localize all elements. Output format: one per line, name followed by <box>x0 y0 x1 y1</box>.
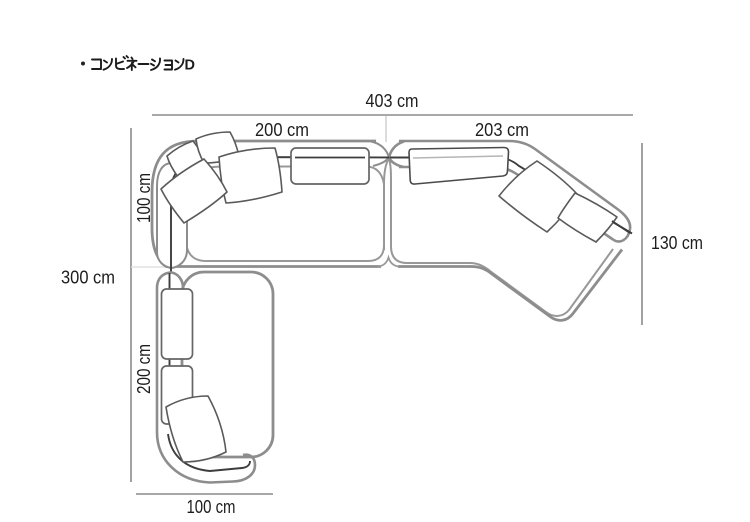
svg-text:403 cm: 403 cm <box>366 90 419 111</box>
svg-text:300 cm: 300 cm <box>61 267 115 288</box>
svg-text:D: D <box>185 58 195 74</box>
svg-text:200 cm: 200 cm <box>255 119 309 140</box>
svg-text:130 cm: 130 cm <box>651 232 703 253</box>
svg-text:100 cm: 100 cm <box>187 496 236 517</box>
svg-text:200 cm: 200 cm <box>133 344 154 394</box>
svg-text:203 cm: 203 cm <box>475 119 529 140</box>
